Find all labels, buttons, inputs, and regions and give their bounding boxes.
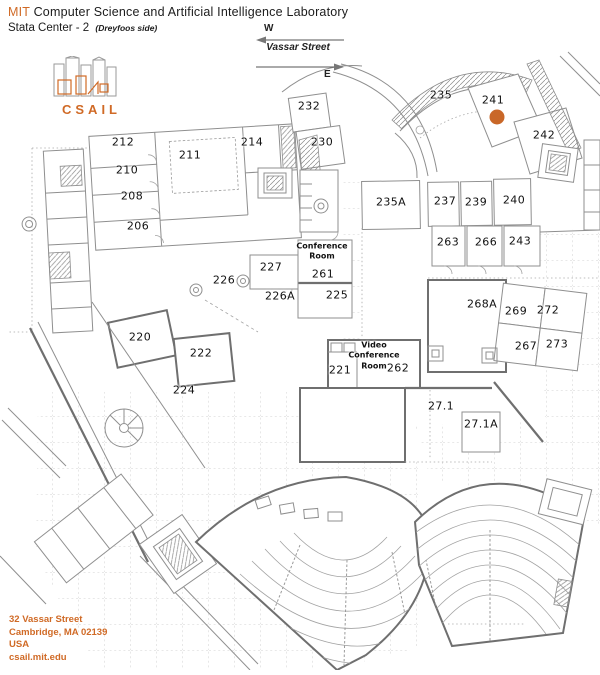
room-label-conference-room: Conference Room (296, 242, 347, 263)
room-label-27.1: 27.1 (428, 401, 454, 414)
room-label-240: 240 (503, 195, 525, 208)
room-label-230: 230 (311, 137, 333, 150)
csail-wordmark: CSAIL (62, 102, 121, 117)
page: 212211214232230210208206235241242235A237… (0, 0, 600, 670)
room-label-227: 227 (260, 262, 282, 275)
org-name: MIT (8, 5, 30, 19)
room-label-243: 243 (509, 236, 531, 249)
room-label-272: 272 (537, 305, 559, 318)
footer-address: 32 Vassar Street Cambridge, MA 02139 USA… (9, 614, 107, 664)
elevator-icon (49, 252, 71, 279)
room-label-225: 225 (326, 290, 348, 303)
room-label-239: 239 (465, 197, 487, 210)
room-label-262: 262 (387, 363, 409, 376)
room-label-261: 261 (312, 269, 334, 282)
title-text: Computer Science and Artificial Intellig… (30, 5, 348, 19)
room-label-27.1a: 27.1A (464, 419, 498, 432)
room-label-226a: 226A (265, 291, 295, 304)
csail-logo: CSAIL (40, 56, 130, 118)
room-label-267: 267 (515, 341, 537, 354)
street-name: Vassar Street (252, 42, 344, 53)
room-label-237: 237 (434, 196, 456, 209)
page-title: MIT Computer Science and Artificial Inte… (8, 5, 348, 19)
room-label-210: 210 (116, 165, 138, 178)
room-label-206: 206 (127, 221, 149, 234)
website-url: csail.mit.edu (9, 652, 107, 665)
room-label-226: 226 (213, 275, 235, 288)
csail-skyline-icon (40, 56, 130, 102)
room-label-268a: 268A (467, 299, 497, 312)
street-compass: W Vassar Street E (252, 25, 348, 85)
room-label-211: 211 (179, 150, 201, 163)
compass-west-label: W (264, 23, 273, 34)
restrooms (300, 170, 338, 232)
west-service-band (18, 149, 92, 334)
room-label-235: 235 (430, 90, 452, 103)
room-label-242: 242 (533, 130, 555, 143)
large-room (300, 388, 405, 462)
building-floor: Stata Center - 2 (8, 22, 89, 34)
rooms-268a-block (428, 280, 587, 372)
stair-core (258, 168, 292, 198)
wing-note: (Dreyfoos side) (95, 23, 157, 33)
address-line-1: 32 Vassar Street (9, 614, 107, 627)
address-line-2: Cambridge, MA 02139 (9, 627, 107, 640)
room-label-235a: 235A (376, 197, 406, 210)
room-label-263: 263 (437, 237, 459, 250)
room-label-241: 241 (482, 95, 504, 108)
room-label-208: 208 (121, 191, 143, 204)
room-label-212: 212 (112, 137, 134, 150)
room-label-222: 222 (190, 348, 212, 361)
elevator-icon (60, 165, 82, 186)
room-label-266: 266 (475, 237, 497, 250)
room-label-220: 220 (129, 332, 151, 345)
east-arrow-icon (334, 64, 344, 71)
room-label-232: 232 (298, 101, 320, 114)
location-marker (490, 110, 505, 125)
address-line-3: USA (9, 639, 107, 652)
room-label-269: 269 (505, 306, 527, 319)
room-label-273: 273 (546, 339, 568, 352)
compass-east-label: E (324, 69, 331, 80)
room-label-224: 224 (173, 385, 195, 398)
room-label-214: 214 (241, 137, 263, 150)
curved-wall (333, 72, 428, 176)
compass-arrows (252, 25, 348, 85)
